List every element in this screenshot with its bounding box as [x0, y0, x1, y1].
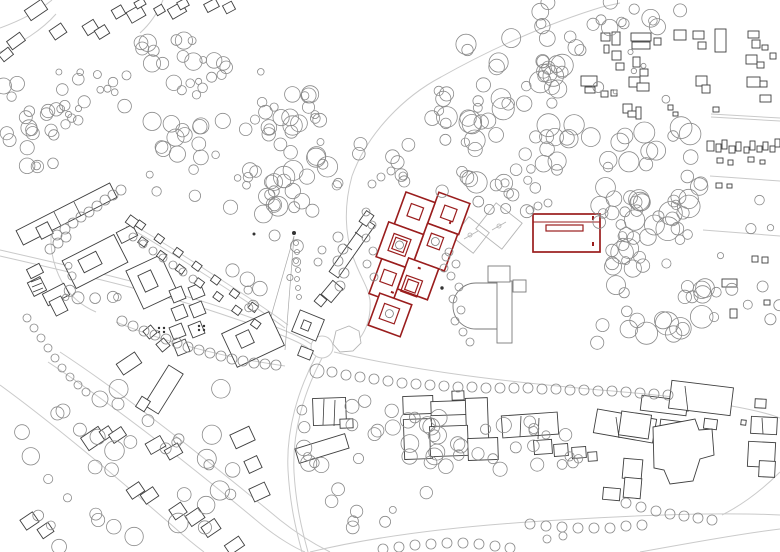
building — [554, 444, 569, 457]
building — [618, 411, 651, 439]
building — [581, 76, 597, 86]
building — [403, 395, 434, 414]
building — [696, 76, 707, 86]
building — [746, 55, 757, 64]
building — [224, 536, 244, 552]
building — [37, 522, 54, 538]
building — [588, 452, 598, 462]
building — [762, 45, 768, 50]
building — [631, 33, 651, 41]
building — [616, 63, 624, 70]
building — [213, 291, 224, 301]
building — [722, 140, 727, 149]
building — [770, 53, 776, 59]
building — [654, 38, 661, 45]
building — [668, 105, 673, 110]
building — [760, 160, 765, 164]
building — [0, 47, 13, 61]
building — [612, 32, 620, 45]
building — [229, 288, 240, 298]
building — [116, 352, 142, 375]
building — [717, 158, 723, 163]
building — [698, 42, 706, 49]
building — [192, 261, 203, 271]
building — [111, 5, 126, 19]
building — [693, 31, 704, 39]
building — [727, 184, 732, 188]
building — [204, 0, 220, 13]
church-building — [453, 266, 526, 343]
building — [702, 85, 710, 93]
building — [189, 301, 206, 318]
building — [534, 439, 553, 454]
building — [759, 461, 776, 478]
building — [763, 142, 768, 150]
building — [169, 323, 186, 340]
building — [7, 32, 26, 49]
building — [295, 434, 349, 464]
building — [222, 1, 235, 14]
red-hall-outline — [533, 214, 600, 252]
building — [751, 416, 778, 434]
building — [770, 146, 775, 152]
building — [762, 257, 768, 263]
building — [173, 247, 184, 257]
site-plan-svg — [0, 0, 780, 552]
building — [736, 142, 741, 151]
building — [730, 309, 737, 318]
building — [49, 23, 67, 40]
building — [715, 29, 726, 52]
building — [249, 482, 270, 502]
building — [775, 139, 780, 147]
building — [729, 146, 735, 153]
highlighted-hall — [533, 214, 600, 252]
building — [673, 112, 678, 116]
building — [201, 519, 221, 538]
building — [636, 107, 641, 119]
building — [748, 31, 759, 38]
paved-area — [333, 326, 361, 352]
building — [329, 219, 375, 278]
church-wing — [497, 281, 512, 343]
building — [750, 141, 755, 150]
building — [752, 40, 760, 48]
building — [707, 141, 714, 151]
building — [728, 160, 733, 165]
building — [757, 62, 764, 68]
building — [748, 157, 754, 162]
building — [126, 5, 146, 23]
building — [230, 426, 255, 448]
church-wing — [513, 280, 526, 292]
building — [637, 83, 649, 91]
building — [612, 51, 621, 60]
building — [760, 95, 771, 102]
building — [628, 111, 636, 117]
building — [188, 321, 205, 338]
building — [755, 399, 766, 409]
building — [244, 456, 262, 474]
building — [144, 365, 183, 414]
building — [744, 147, 749, 153]
building — [716, 144, 721, 152]
building — [169, 502, 187, 520]
building — [16, 183, 117, 245]
building — [20, 512, 39, 530]
building — [722, 279, 737, 287]
building — [757, 146, 762, 152]
red-module — [368, 293, 412, 337]
building — [760, 81, 767, 87]
building — [603, 487, 621, 500]
building — [632, 42, 650, 49]
church-wing — [488, 266, 510, 282]
site-plan — [0, 0, 780, 552]
building — [741, 420, 747, 426]
building — [752, 256, 758, 262]
building — [171, 304, 188, 321]
building — [24, 0, 47, 21]
building — [747, 77, 760, 87]
building — [640, 69, 648, 76]
building — [145, 436, 166, 455]
building — [604, 45, 609, 53]
building — [703, 418, 717, 430]
building — [633, 57, 640, 67]
building — [674, 30, 686, 40]
building — [622, 458, 643, 480]
building — [601, 91, 608, 97]
building — [623, 477, 642, 498]
building — [716, 183, 722, 188]
building — [713, 107, 719, 112]
building — [764, 300, 770, 305]
